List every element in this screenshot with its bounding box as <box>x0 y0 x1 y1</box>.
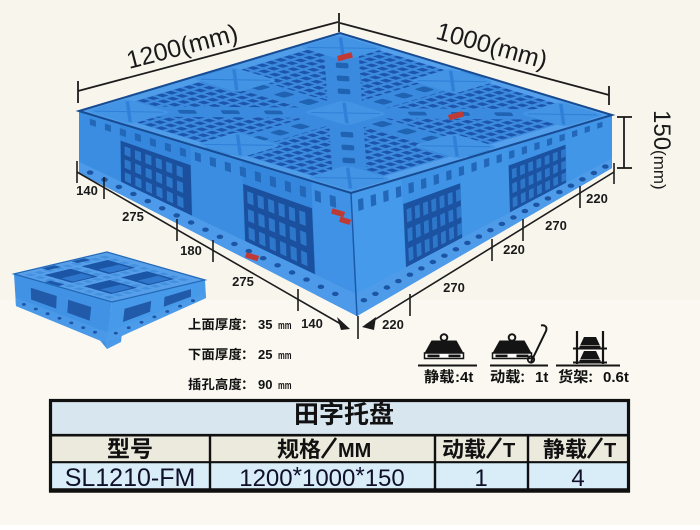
svg-text:SL1210-FM: SL1210-FM <box>65 464 196 492</box>
svg-text:35: 35 <box>258 317 272 332</box>
svg-text:0.6t: 0.6t <box>603 369 629 386</box>
svg-text:270: 270 <box>545 218 567 233</box>
svg-text:1200*1000*150: 1200*1000*150 <box>239 463 405 493</box>
svg-text:4: 4 <box>571 465 584 492</box>
svg-text:270: 270 <box>443 280 465 295</box>
svg-text::4t: :4t <box>455 369 473 386</box>
svg-text:90: 90 <box>258 377 272 392</box>
svg-text:mm: mm <box>278 380 292 392</box>
svg-text:T: T <box>604 440 616 462</box>
svg-text:220: 220 <box>503 242 525 257</box>
svg-text:220: 220 <box>382 317 404 332</box>
svg-text:140: 140 <box>301 316 323 331</box>
svg-text:275: 275 <box>122 209 144 224</box>
svg-text:140: 140 <box>76 183 98 198</box>
svg-text:180: 180 <box>180 243 202 258</box>
svg-text:mm: mm <box>278 320 292 332</box>
svg-text:T: T <box>503 440 515 462</box>
svg-text:mm: mm <box>278 350 292 362</box>
svg-text:220: 220 <box>586 191 608 206</box>
svg-text:25: 25 <box>258 347 272 362</box>
svg-text:1: 1 <box>474 465 487 492</box>
svg-text:1t: 1t <box>535 369 548 386</box>
svg-text:MM: MM <box>338 440 371 462</box>
svg-text:275: 275 <box>232 274 254 289</box>
